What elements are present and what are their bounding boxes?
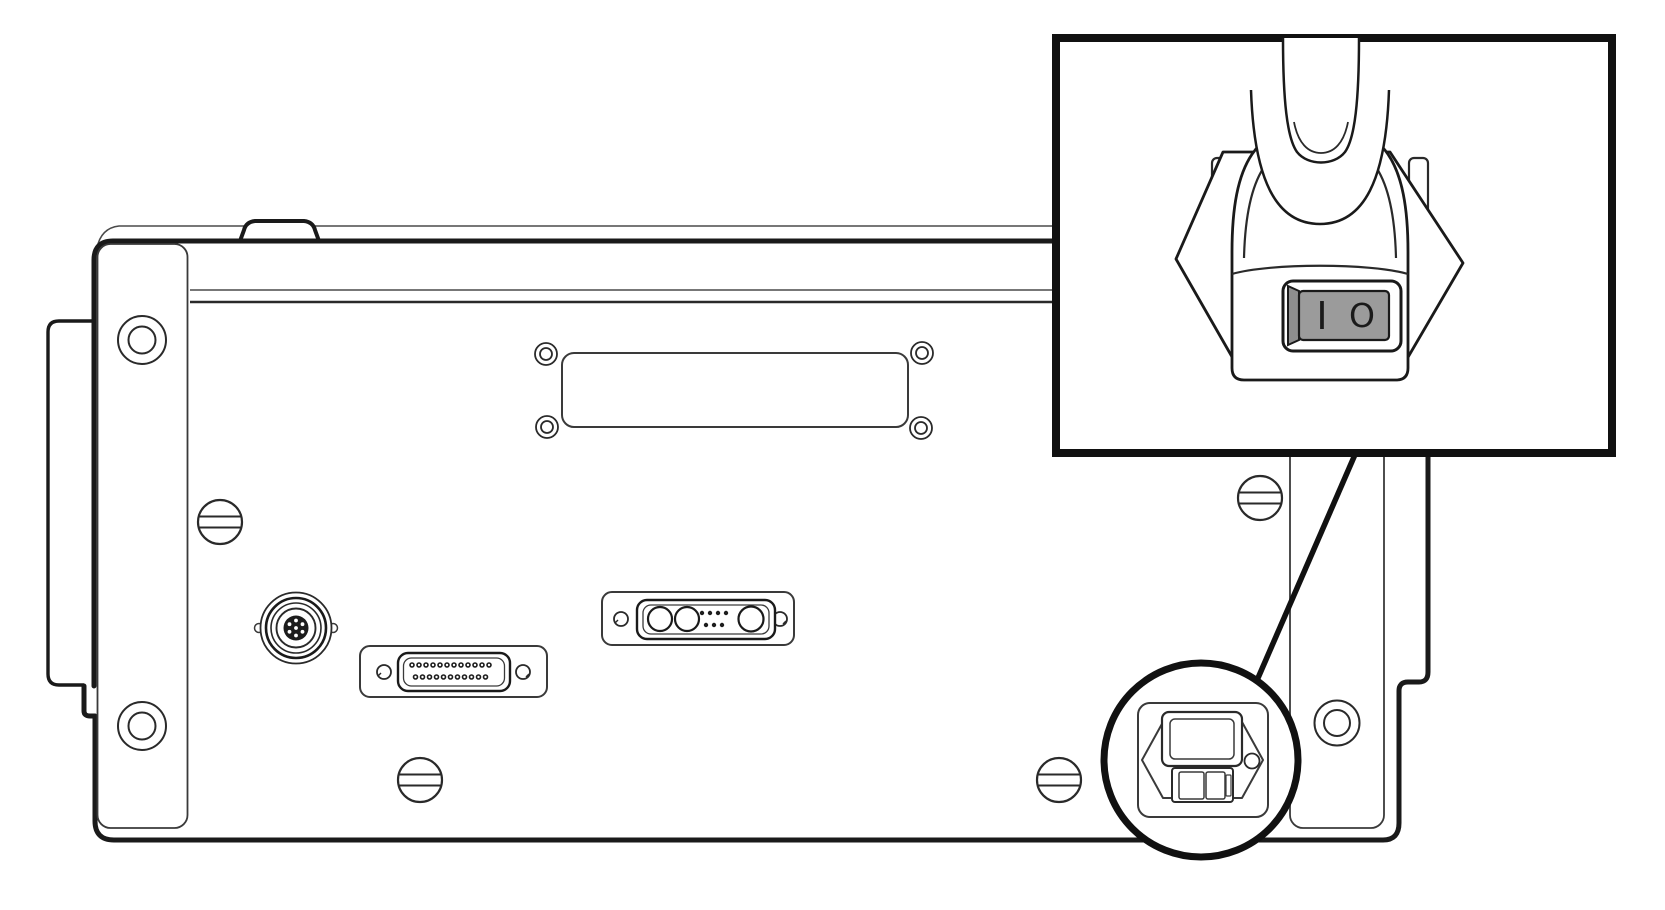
circular-din-connector: [255, 593, 338, 664]
switch-on-label: I: [1316, 294, 1327, 338]
rocker-bevel-edge: [1288, 286, 1299, 345]
panel-screw-upper-left: [198, 500, 242, 544]
db25-mounting-screw-right: [516, 665, 530, 679]
fuse-release-button: [1245, 754, 1260, 769]
plate-screw-hole-top-right: [911, 342, 933, 364]
bracket-hole-bottom-left: [118, 702, 166, 750]
power-entry-module: [1138, 703, 1268, 817]
bracket-hole-top-left: [118, 316, 166, 364]
top-access-plate: [562, 353, 908, 427]
dsub-large-contact-1: [648, 607, 672, 631]
power-cord: [1283, 38, 1359, 163]
db25-connector: [360, 646, 547, 697]
panel-screw-bottom-center: [398, 758, 442, 802]
diagram-page: I O: [0, 0, 1665, 910]
rocker-switch: I O: [1283, 281, 1401, 351]
panel-screw-bottom-right: [1037, 758, 1081, 802]
switch-off-label: O: [1349, 296, 1375, 335]
combo-dsub-connector: [602, 592, 794, 645]
plate-screw-hole-bottom-right: [910, 417, 932, 439]
dsub-large-contact-3: [739, 607, 764, 632]
db25-mounting-screw-left: [377, 665, 391, 679]
rocker-button: [1299, 291, 1389, 340]
dsub-mounting-screw-left: [614, 612, 628, 626]
left-rack-ear: [48, 321, 94, 685]
plate-screw-hole-bottom-left: [536, 416, 558, 438]
fuse-drawer: [1172, 768, 1233, 802]
rear-panel-diagram: I O: [0, 0, 1665, 910]
bracket-hole-bottom-right: [1315, 701, 1360, 746]
panel-screw-upper-right: [1238, 476, 1282, 520]
plate-screw-hole-top-left: [535, 343, 557, 365]
dsub-large-contact-2: [675, 607, 699, 631]
top-handle-bump: [240, 221, 319, 241]
